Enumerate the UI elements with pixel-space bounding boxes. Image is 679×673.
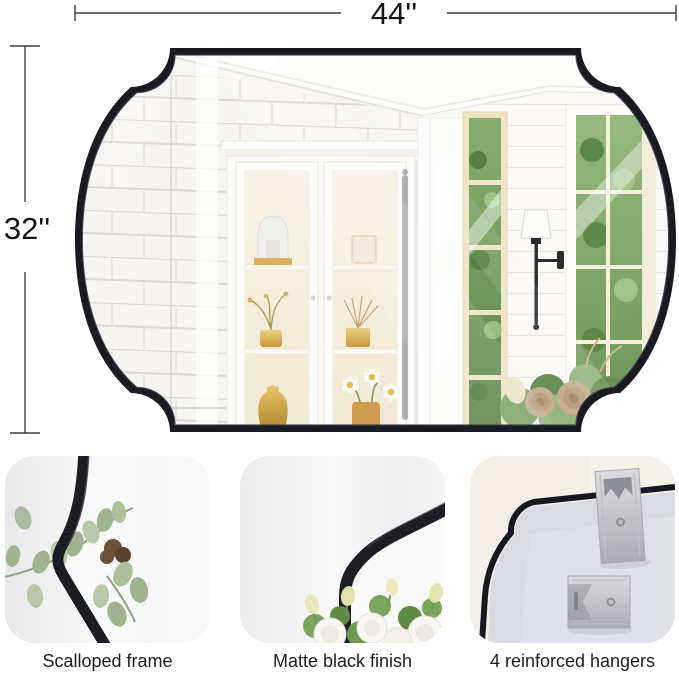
matte-black-finish-photo xyxy=(240,456,445,643)
width-dimension-label: 44'' xyxy=(371,0,417,31)
hanger-middle xyxy=(568,576,632,635)
reinforced-hangers-photo xyxy=(470,456,675,643)
thumbnail-matte-black-finish: Matte black finish xyxy=(240,456,445,672)
mirror-main-photo: 44'' 32'' xyxy=(0,0,679,452)
height-dimension-label: 32'' xyxy=(4,211,50,246)
product-image: 44'' 32'' xyxy=(0,0,679,673)
detail-thumbnails: Scalloped frame xyxy=(0,456,679,672)
thumbnail-scalloped-frame: Scalloped frame xyxy=(5,456,210,672)
caption-scalloped-frame: Scalloped frame xyxy=(5,650,210,672)
scalloped-mirror xyxy=(75,48,676,438)
scalloped-frame-photo xyxy=(5,456,210,643)
mirror-reflection xyxy=(75,48,676,438)
caption-reinforced-hangers: 4 reinforced hangers xyxy=(470,650,675,672)
caption-matte-black-finish: Matte black finish xyxy=(240,650,445,672)
thumbnail-reinforced-hangers: 4 reinforced hangers xyxy=(470,456,675,672)
